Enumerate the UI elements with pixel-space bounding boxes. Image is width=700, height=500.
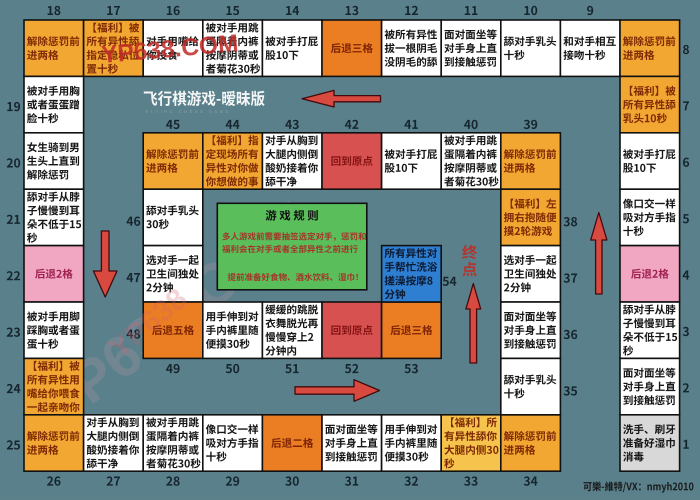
svg-text:FLYING CHESS GAME: FLYING CHESS GAME bbox=[146, 109, 231, 114]
